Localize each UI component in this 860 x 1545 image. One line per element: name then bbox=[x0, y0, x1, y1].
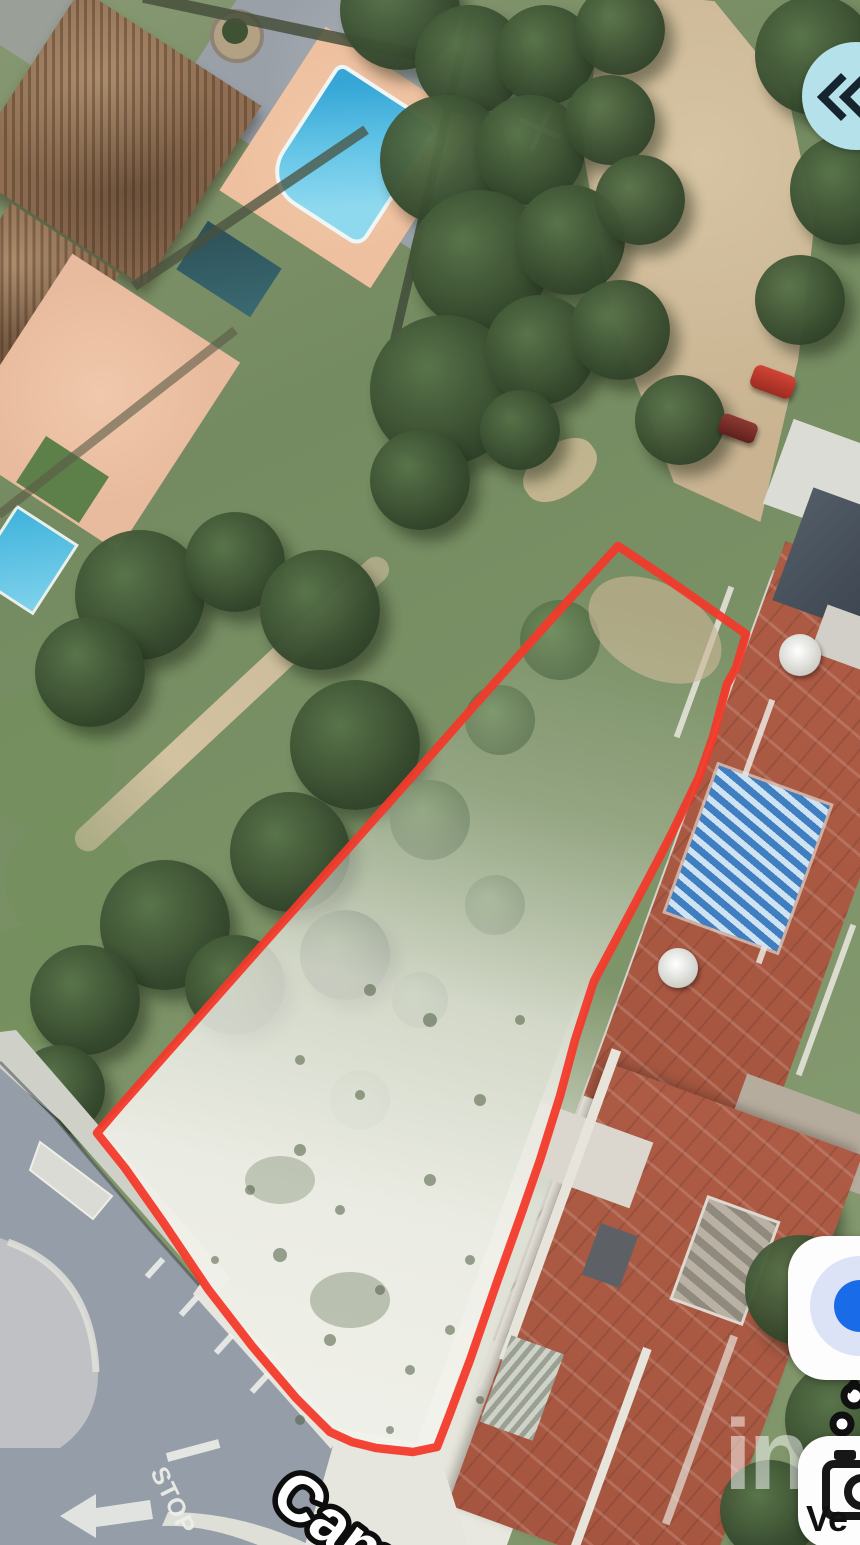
tree bbox=[755, 255, 845, 345]
patio-umbrella bbox=[658, 948, 698, 988]
small-pool bbox=[0, 505, 79, 616]
tree bbox=[260, 550, 380, 670]
tree bbox=[35, 617, 145, 727]
tree bbox=[30, 945, 140, 1055]
satellite-map-view[interactable]: STOP Cam bbox=[0, 0, 860, 1545]
tree bbox=[300, 910, 390, 1000]
tree bbox=[290, 680, 420, 810]
my-location-button[interactable] bbox=[788, 1236, 860, 1380]
bush bbox=[392, 972, 448, 1028]
stop-road-marking: STOP bbox=[145, 1462, 202, 1539]
bush bbox=[330, 1070, 390, 1130]
watermark: in bbox=[724, 1398, 807, 1513]
tree bbox=[370, 430, 470, 530]
tree bbox=[45, 1450, 145, 1545]
tree bbox=[570, 280, 670, 380]
covered-pool bbox=[176, 221, 281, 318]
bush bbox=[465, 685, 535, 755]
bush bbox=[390, 780, 470, 860]
view-photos-label: Ve bbox=[806, 1498, 848, 1540]
tree bbox=[230, 792, 350, 912]
tree bbox=[565, 75, 655, 165]
tree bbox=[480, 390, 560, 470]
tree bbox=[595, 155, 685, 245]
camera-icon bbox=[834, 1450, 856, 1460]
tree bbox=[185, 935, 285, 1035]
bush bbox=[465, 875, 525, 935]
stop-line bbox=[166, 1439, 220, 1462]
tree bbox=[635, 375, 725, 465]
bush bbox=[520, 600, 600, 680]
patio-umbrella bbox=[779, 634, 821, 676]
street-name-label: Cam bbox=[260, 1456, 414, 1545]
